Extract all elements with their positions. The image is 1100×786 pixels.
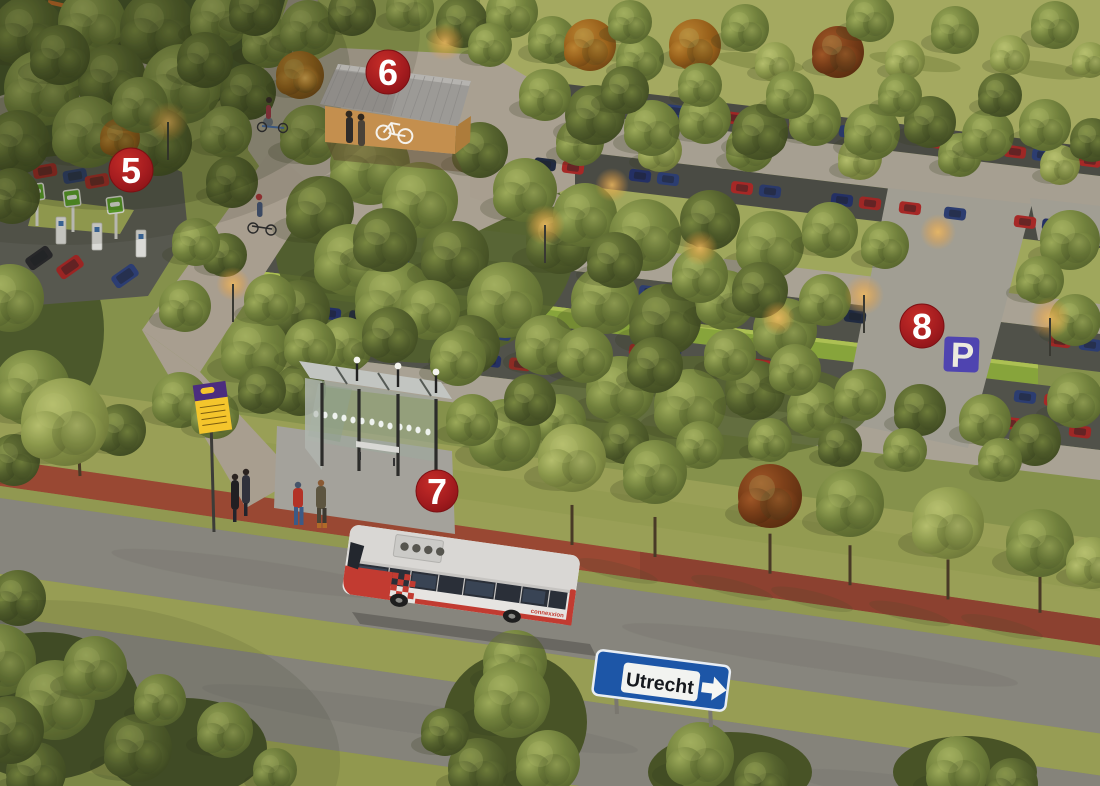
svg-text:P: P (950, 336, 975, 376)
svg-text:5: 5 (121, 150, 141, 191)
svg-text:8: 8 (912, 306, 932, 347)
svg-text:7: 7 (427, 471, 447, 512)
svg-text:6: 6 (378, 52, 398, 93)
